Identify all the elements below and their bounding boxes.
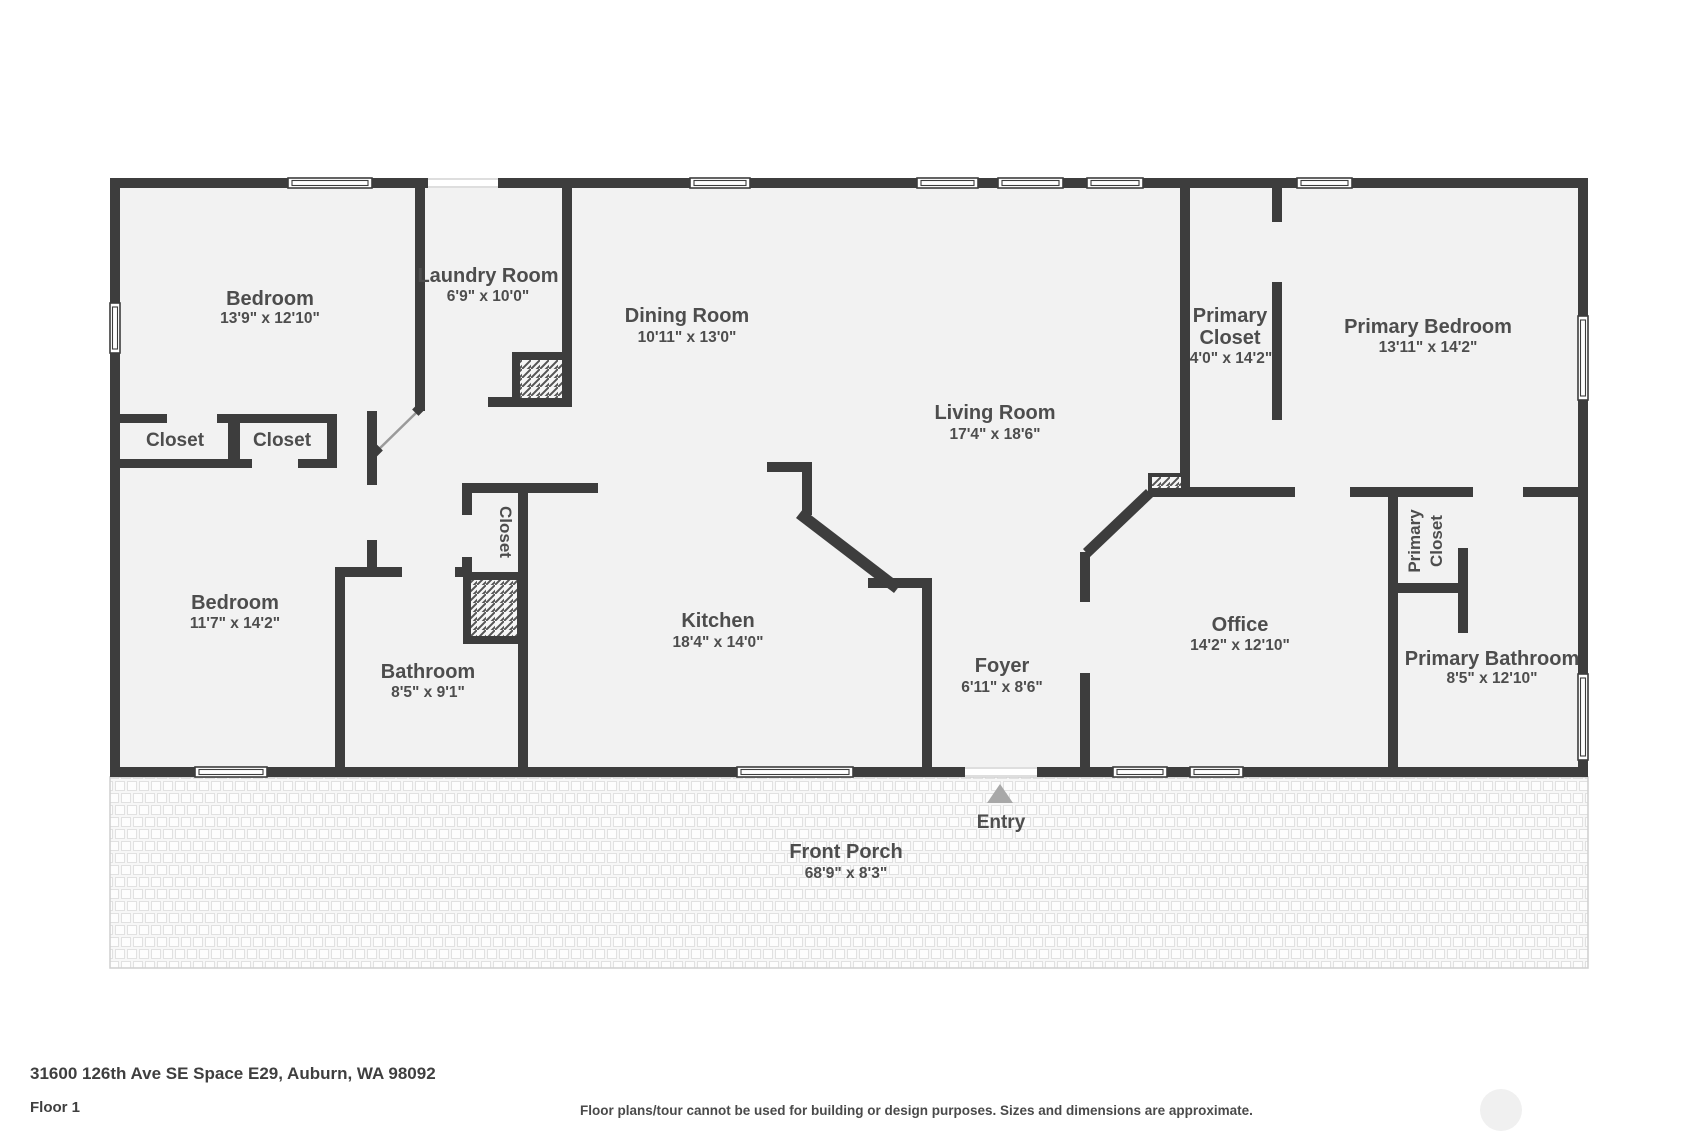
room-label: Foyer <box>975 655 1030 677</box>
room-dims: 6'9" x 10'0" <box>447 288 529 305</box>
window-icon <box>690 178 750 188</box>
room-dims: 18'4" x 14'0" <box>672 634 763 651</box>
room-label: Closet <box>496 506 515 558</box>
floor-plan-page: Bedroom 13'9" x 12'10" Laundry Room 6'9"… <box>0 0 1697 1131</box>
fireplace-icon <box>1150 475 1183 490</box>
window-icon <box>195 767 267 777</box>
watermark-logo <box>1480 1089 1522 1131</box>
room-label: Dining Room <box>625 305 749 327</box>
room-dims: 13'11" x 14'2" <box>1379 339 1478 356</box>
entry-door-opening <box>965 767 1037 777</box>
room-dims: 10'11" x 13'0" <box>638 329 737 346</box>
room-dims: 17'4" x 18'6" <box>949 426 1040 443</box>
room-label: Primary Bathroom <box>1405 648 1580 670</box>
room-label: Closet <box>146 430 205 451</box>
room-label: Bathroom <box>381 661 475 683</box>
room-label: Primary <box>1193 305 1268 327</box>
window-icon <box>737 767 853 777</box>
room-dims: 4'0" x 14'2" <box>1190 350 1272 367</box>
disclaimer-text: Floor plans/tour cannot be used for buil… <box>580 1103 1253 1118</box>
floor-plan-svg: Bedroom 13'9" x 12'10" Laundry Room 6'9"… <box>0 0 1697 1131</box>
window-icon <box>1297 178 1352 188</box>
window-icon <box>917 178 978 188</box>
room-label: Front Porch <box>789 841 902 863</box>
window-icon <box>1113 767 1167 777</box>
room-label: Primary Bedroom <box>1344 316 1512 338</box>
room-label: Primary <box>1405 509 1424 573</box>
address-text: 31600 126th Ave SE Space E29, Auburn, WA… <box>30 1064 436 1083</box>
room-label: Kitchen <box>681 610 754 632</box>
room-label: Closet <box>1427 515 1446 567</box>
room-label: Laundry Room <box>417 265 558 287</box>
door-opening <box>428 178 498 188</box>
footer: 31600 126th Ave SE Space E29, Auburn, WA… <box>30 1064 1522 1131</box>
room-dims: 8'5" x 9'1" <box>391 684 465 701</box>
laundry-appliance-icon <box>516 356 566 402</box>
room-dims: 68'9" x 8'3" <box>805 865 887 882</box>
window-icon <box>998 178 1063 188</box>
room-dims: 14'2" x 12'10" <box>1190 637 1290 654</box>
room-label: Bedroom <box>226 288 314 310</box>
room-dims: 8'5" x 12'10" <box>1446 670 1537 687</box>
window-icon <box>110 303 120 353</box>
room-label: Closet <box>1199 327 1260 349</box>
shower-icon <box>467 576 521 640</box>
window-icon <box>288 178 372 188</box>
window-icon <box>1087 178 1143 188</box>
room-dims: 11'7" x 14'2" <box>190 615 280 632</box>
entry-label: Entry <box>977 812 1026 833</box>
room-label: Closet <box>253 430 312 451</box>
floor-label: Floor 1 <box>30 1099 80 1116</box>
house-interior <box>110 178 1588 777</box>
room-label: Office <box>1212 614 1269 636</box>
room-dims: 13'9" x 12'10" <box>220 310 320 327</box>
window-icon <box>1190 767 1243 777</box>
room-label: Living Room <box>934 402 1055 424</box>
room-dims: 6'11" x 8'6" <box>961 679 1043 696</box>
window-icon <box>1578 316 1588 400</box>
window-icon <box>1578 674 1588 760</box>
room-label: Bedroom <box>191 592 279 614</box>
